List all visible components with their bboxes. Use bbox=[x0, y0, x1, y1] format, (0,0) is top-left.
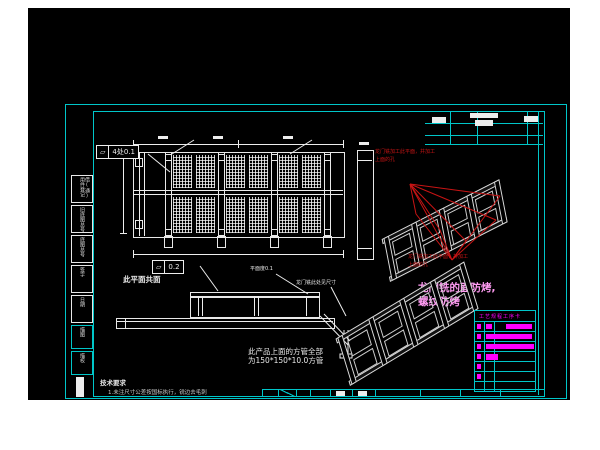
left-cell: 日期 bbox=[71, 295, 93, 323]
left-signature-column: 借(通)用件登记 旧底图总号 底图总号 签字 日期 描图 描校 bbox=[71, 175, 93, 397]
left-cell-label: 借(通)用件登记 bbox=[79, 177, 89, 202]
red-note-top: 龙门铣加工此平面，并加工 上面的孔 bbox=[375, 149, 435, 164]
left-cell-label: 底图总号 bbox=[79, 237, 84, 257]
table-entry bbox=[477, 364, 481, 369]
left-cell: 签字 bbox=[71, 265, 93, 293]
flatness-value: 4处0.1 bbox=[109, 146, 138, 158]
left-cell-label: 日期 bbox=[79, 297, 84, 307]
plan-post bbox=[271, 152, 278, 238]
process-table-header: 工艺规程工序卡 bbox=[479, 313, 521, 320]
left-cell-label: 描图 bbox=[79, 327, 84, 337]
header-text-blob bbox=[475, 120, 493, 126]
table-entry bbox=[477, 324, 481, 329]
table-entry bbox=[477, 374, 481, 379]
red-note-top-line1: 龙门铣加工此平面，并加工 bbox=[375, 149, 435, 157]
header-text-blob bbox=[470, 113, 498, 118]
flatness-value: 0.2 bbox=[165, 261, 182, 273]
table-entry bbox=[506, 324, 532, 329]
note-gantry-dim: 龙门铣此处见尺寸 bbox=[296, 281, 336, 287]
header-table bbox=[425, 111, 543, 145]
left-cell-label: 旧底图总号 bbox=[79, 207, 84, 232]
note-square-tube-line2: 为150*150*10.0方管 bbox=[248, 357, 323, 366]
right-corridor-line bbox=[538, 111, 539, 395]
flatness-symbol: ⏥ bbox=[97, 146, 109, 158]
bottom-title-strip bbox=[262, 389, 545, 397]
table-entry bbox=[486, 324, 492, 329]
left-cell: 旧底图总号 bbox=[71, 205, 93, 233]
plan-post bbox=[324, 152, 331, 238]
table-entry bbox=[486, 334, 532, 339]
left-cell: 描校 bbox=[71, 351, 93, 375]
left-cell: 底图总号 bbox=[71, 235, 93, 263]
left-cell-blob bbox=[76, 377, 84, 397]
flatness-callout-top: ⏥ 4处0.1 bbox=[96, 145, 139, 159]
strip-text-blob bbox=[358, 391, 367, 396]
process-table: 工艺规程工序卡 bbox=[474, 310, 536, 392]
red-note-bottom-line1: 龙门铣加工此平面，并加工 bbox=[408, 254, 468, 262]
cad-viewport[interactable]: 借(通)用件登记 旧底图总号 底图总号 签字 日期 描图 描校 bbox=[28, 8, 570, 400]
table-entry bbox=[477, 344, 481, 349]
plan-post bbox=[165, 152, 172, 238]
left-cell-label: 描校 bbox=[79, 353, 84, 363]
plan-post bbox=[218, 152, 225, 238]
end-post-side-view bbox=[357, 150, 374, 260]
table-entry bbox=[486, 354, 498, 360]
note-coplanar: 此平面共面 bbox=[123, 276, 161, 285]
cad-screenshot-page: 借(通)用件登记 旧底图总号 底图总号 签字 日期 描图 描校 bbox=[0, 0, 600, 450]
note-square-tube: 此产品上面的方管全部 为150*150*10.0方管 bbox=[248, 348, 323, 365]
left-cell-label: 签字 bbox=[79, 267, 84, 277]
tech-req-item: 1.未注尺寸公差按国标执行，锐边去毛刺 bbox=[108, 390, 207, 396]
flatness-symbol: ⏥ bbox=[153, 261, 165, 273]
left-cell: 描图 bbox=[71, 325, 93, 349]
tech-req-title: 技术要求 bbox=[100, 380, 126, 387]
left-cell: 借(通)用件登记 bbox=[71, 175, 93, 203]
plan-view bbox=[123, 134, 378, 264]
header-text-blob bbox=[524, 116, 538, 122]
flatness-callout-mid: ⏥ 0.2 bbox=[152, 260, 184, 274]
table-entry bbox=[477, 334, 481, 339]
strip-text-blob bbox=[336, 391, 345, 396]
table-entry bbox=[477, 354, 481, 359]
red-note-top-line2: 上面的孔 bbox=[375, 157, 435, 165]
note-flatness: 平面度0.1 bbox=[250, 267, 273, 273]
table-entry bbox=[486, 344, 534, 349]
header-text-blob bbox=[432, 117, 446, 123]
